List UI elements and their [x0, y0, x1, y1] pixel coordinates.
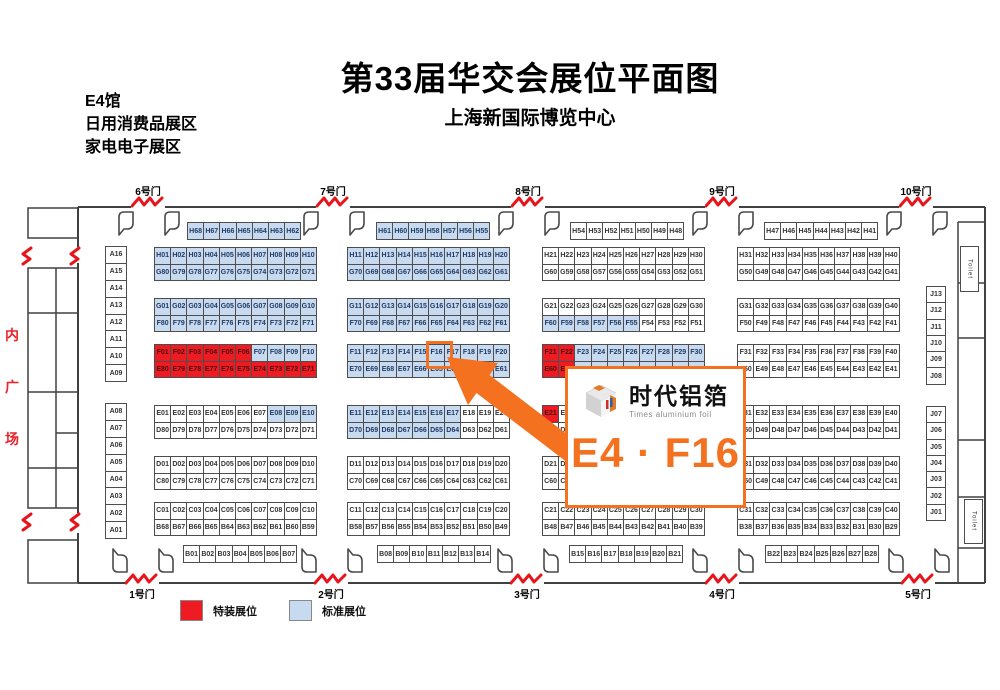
booth-E10: E10: [301, 406, 316, 422]
booth-F55: F55: [624, 316, 639, 332]
booth-H60: H60: [393, 223, 408, 239]
booth-H64: H64: [253, 223, 268, 239]
booth-B26: B26: [831, 546, 846, 562]
booth-F07: F07: [252, 345, 267, 361]
booth-B07: B07: [281, 546, 296, 562]
booth-C12: C12: [364, 503, 379, 519]
booth-grid: B22B23B24B25B26B27B28: [765, 545, 879, 563]
booth-G18: G18: [461, 299, 476, 315]
booth-E48: E48: [770, 362, 785, 378]
booth-C80: C80: [155, 474, 170, 490]
booth-H15: H15: [413, 248, 428, 264]
booth-C35: C35: [803, 503, 818, 519]
booth-D69: D69: [364, 423, 379, 439]
booth-F41: F41: [884, 316, 899, 332]
booth-G13: G13: [380, 299, 395, 315]
booth-C62: C62: [478, 474, 493, 490]
booth-D74: D74: [252, 423, 267, 439]
booth-F76: F76: [220, 316, 235, 332]
booth-F29: F29: [673, 345, 688, 361]
booth-A05: A05: [106, 455, 126, 471]
booth-G54: G54: [640, 265, 655, 281]
booth-grid: J13J12J11J10J09J08: [926, 286, 946, 385]
booth-G14: G14: [397, 299, 412, 315]
booth-D60: D60: [543, 423, 558, 439]
brand-row: 时代铝箔 Times aluminium foil: [582, 383, 729, 419]
booth-F53: F53: [656, 316, 671, 332]
booth-B43: B43: [624, 520, 639, 536]
booth-G68: G68: [380, 265, 395, 281]
booth-E41: E41: [884, 362, 899, 378]
booth-D62: D62: [478, 423, 493, 439]
booth-E45: E45: [819, 362, 834, 378]
booth-G30: G30: [689, 299, 704, 315]
booth-G26: G26: [624, 299, 639, 315]
booth-D15: D15: [413, 457, 428, 473]
booth-B58: B58: [348, 520, 363, 536]
brand-name-en: Times aluminium foil: [629, 410, 729, 419]
gate-label-4号门: 4号门: [709, 586, 735, 601]
booth-E05: E05: [220, 406, 235, 422]
booth-D78: D78: [187, 423, 202, 439]
booth-H28: H28: [656, 248, 671, 264]
booth-grid: H54H53H52H51H50H49H48: [570, 222, 684, 240]
booth-B09: B09: [394, 546, 409, 562]
booth-E69: E69: [364, 362, 379, 378]
booth-C71: C71: [301, 474, 316, 490]
booth-D67: D67: [397, 423, 412, 439]
booth-grid: B08B09B10B11B12B13B14: [377, 545, 491, 563]
booth-H32: H32: [754, 248, 769, 264]
booth-C44: C44: [835, 474, 850, 490]
booth-H19: H19: [478, 248, 493, 264]
booth-F21: F21: [543, 345, 558, 361]
booth-C73: C73: [268, 474, 283, 490]
booth-B08: B08: [378, 546, 393, 562]
booth-B11: B11: [427, 546, 442, 562]
booth-G10: G10: [301, 299, 316, 315]
gate-mark-icon: [705, 196, 739, 208]
booth-C10: C10: [301, 503, 316, 519]
booth-D75: D75: [236, 423, 251, 439]
booth-B10: B10: [410, 546, 425, 562]
booth-E62: E62: [478, 362, 493, 378]
booth-B57: B57: [364, 520, 379, 536]
booth-B64: B64: [220, 520, 235, 536]
booth-E01: E01: [155, 406, 170, 422]
booth-B14: B14: [475, 546, 490, 562]
booth-C34: C34: [787, 503, 802, 519]
booth-D32: D32: [754, 457, 769, 473]
booth-G56: G56: [608, 265, 623, 281]
booth-E15: E15: [413, 406, 428, 422]
booth-C08: C08: [268, 503, 283, 519]
booth-D70: D70: [348, 423, 363, 439]
booth-G03: G03: [187, 299, 202, 315]
door-swing-icon: [736, 210, 756, 236]
booth-C43: C43: [851, 474, 866, 490]
booth-F14: F14: [397, 345, 412, 361]
booth-E11: E11: [348, 406, 363, 422]
door-swing-icon: [116, 210, 136, 236]
booth-D35: D35: [803, 457, 818, 473]
booth-G62: G62: [478, 265, 493, 281]
booth-G80: G80: [155, 265, 170, 281]
booth-D45: D45: [819, 423, 834, 439]
booth-C11: C11: [348, 503, 363, 519]
booth-F58: F58: [575, 316, 590, 332]
booth-grid: C01C02C03C04C05C06C07C08C09C10B68B67B66B…: [154, 502, 317, 536]
booth-F78: F78: [187, 316, 202, 332]
booth-H27: H27: [640, 248, 655, 264]
booth-F10: F10: [301, 345, 316, 361]
booth-grid: D11D12D13D14D15D16D17D18D19D20C70C69C68C…: [347, 456, 510, 490]
booth-C03: C03: [187, 503, 202, 519]
booth-D63: D63: [461, 423, 476, 439]
booth-grid: F01F02F03F04F05F06F07F08F09F10E80E79E78E…: [154, 344, 317, 378]
booth-F48: F48: [770, 316, 785, 332]
booth-C18: C18: [461, 503, 476, 519]
booth-B48: B48: [543, 520, 558, 536]
booth-F12: F12: [364, 345, 379, 361]
gate-mark-icon: [901, 573, 935, 585]
booth-G51: G51: [689, 265, 704, 281]
booth-E79: E79: [171, 362, 186, 378]
door-swing-icon: [884, 210, 904, 236]
booth-D17: D17: [445, 457, 460, 473]
booth-D21: D21: [543, 457, 558, 473]
door-swing-icon: [930, 210, 950, 236]
booth-G31: G31: [738, 299, 753, 315]
booth-E07: E07: [252, 406, 267, 422]
door-swing-icon: [301, 210, 321, 236]
legend-standard-swatch: [289, 600, 312, 621]
booth-G72: G72: [285, 265, 300, 281]
booth-H02: H02: [171, 248, 186, 264]
booth-grid: A08A07A06A05A04A03A02A01: [105, 403, 127, 539]
booth-E19: E19: [478, 406, 493, 422]
gate-mark-icon: [899, 196, 933, 208]
booth-C60: C60: [543, 474, 558, 490]
booth-E44: E44: [835, 362, 850, 378]
gate-label-5号门: 5号门: [905, 586, 931, 601]
booth-H30: H30: [689, 248, 704, 264]
booth-D71: D71: [301, 423, 316, 439]
booth-F43: F43: [851, 316, 866, 332]
booth-D43: D43: [851, 423, 866, 439]
booth-E16: E16: [429, 406, 444, 422]
booth-C74: C74: [252, 474, 267, 490]
booth-D64: D64: [445, 423, 460, 439]
booth-H52: H52: [603, 223, 618, 239]
door-swing-icon: [110, 548, 130, 574]
booth-C16: C16: [429, 503, 444, 519]
booth-F36: F36: [819, 345, 834, 361]
door-swing-icon: [541, 548, 561, 574]
booth-B51: B51: [461, 520, 476, 536]
booth-B46: B46: [575, 520, 590, 536]
booth-F65: F65: [429, 316, 444, 332]
booth-B68: B68: [155, 520, 170, 536]
booth-H65: H65: [237, 223, 252, 239]
booth-B04: B04: [233, 546, 248, 562]
legend: 特装展位 标准展位: [180, 600, 388, 621]
booth-C32: C32: [754, 503, 769, 519]
booth-C42: C42: [868, 474, 883, 490]
booth-B50: B50: [478, 520, 493, 536]
booth-C09: C09: [285, 503, 300, 519]
booth-B34: B34: [803, 520, 818, 536]
booth-E03: E03: [187, 406, 202, 422]
booth-G52: G52: [673, 265, 688, 281]
brand-text: 时代铝箔 Times aluminium foil: [629, 384, 729, 419]
booth-J07: J07: [927, 407, 945, 422]
booth-H20: H20: [494, 248, 509, 264]
booth-C66: C66: [413, 474, 428, 490]
booth-E68: E68: [380, 362, 395, 378]
booth-E18: E18: [461, 406, 476, 422]
booth-C46: C46: [803, 474, 818, 490]
booth-G40: G40: [884, 299, 899, 315]
booth-B23: B23: [782, 546, 797, 562]
booth-grid: D31D32D33D34D35D36D37D38D39D40C50C49C48C…: [737, 456, 900, 490]
booth-A08: A08: [106, 404, 126, 420]
booth-A13: A13: [106, 298, 126, 314]
booth-F19: F19: [478, 345, 493, 361]
booth-B62: B62: [252, 520, 267, 536]
booth-G61: G61: [494, 265, 509, 281]
booth-F39: F39: [868, 345, 883, 361]
booth-F04: F04: [204, 345, 219, 361]
booth-G75: G75: [236, 265, 251, 281]
booth-J09: J09: [927, 352, 945, 367]
booth-C40: C40: [884, 503, 899, 519]
booth-G19: G19: [478, 299, 493, 315]
booth-G60: G60: [543, 265, 558, 281]
booth-C70: C70: [348, 474, 363, 490]
booth-G64: G64: [445, 265, 460, 281]
booth-J05: J05: [927, 440, 945, 455]
booth-F54: F54: [640, 316, 655, 332]
booth-A06: A06: [106, 438, 126, 454]
booth-D38: D38: [851, 457, 866, 473]
booth-B65: B65: [204, 520, 219, 536]
booth-F24: F24: [592, 345, 607, 361]
booth-G05: G05: [220, 299, 235, 315]
booth-H49: H49: [652, 223, 667, 239]
booth-F22: F22: [559, 345, 574, 361]
booth-G04: G04: [204, 299, 219, 315]
booth-C02: C02: [171, 503, 186, 519]
booth-F62: F62: [478, 316, 493, 332]
booth-G27: G27: [640, 299, 655, 315]
booth-E80: E80: [155, 362, 170, 378]
booth-D12: D12: [364, 457, 379, 473]
toilet-room-top: Toilet: [960, 246, 979, 292]
booth-D41: D41: [884, 423, 899, 439]
booth-D47: D47: [787, 423, 802, 439]
booth-H07: H07: [252, 248, 267, 264]
booth-B02: B02: [200, 546, 215, 562]
booth-B63: B63: [236, 520, 251, 536]
booth-B27: B27: [847, 546, 862, 562]
booth-D37: D37: [835, 457, 850, 473]
booth-A11: A11: [106, 331, 126, 347]
booth-C01: C01: [155, 503, 170, 519]
booth-E75: E75: [236, 362, 251, 378]
booth-B12: B12: [443, 546, 458, 562]
booth-D16: D16: [429, 457, 444, 473]
booth-E71: E71: [301, 362, 316, 378]
booth-G06: G06: [236, 299, 251, 315]
booth-B61: B61: [268, 520, 283, 536]
booth-H43: H43: [830, 223, 845, 239]
booth-F63: F63: [461, 316, 476, 332]
booth-E73: E73: [268, 362, 283, 378]
booth-D33: D33: [770, 457, 785, 473]
booth-G22: G22: [559, 299, 574, 315]
door-swing-icon: [345, 548, 365, 574]
booth-E39: E39: [868, 406, 883, 422]
booth-E49: E49: [754, 362, 769, 378]
booth-B53: B53: [429, 520, 444, 536]
booth-D11: D11: [348, 457, 363, 473]
booth-A15: A15: [106, 264, 126, 280]
booth-H06: H06: [236, 248, 251, 264]
booth-F73: F73: [268, 316, 283, 332]
booth-C67: C67: [397, 474, 412, 490]
booth-E46: E46: [803, 362, 818, 378]
booth-G45: G45: [819, 265, 834, 281]
brand-name-cn: 时代铝箔: [629, 384, 729, 408]
booth-H48: H48: [668, 223, 683, 239]
booth-B38: B38: [738, 520, 753, 536]
booth-G69: G69: [364, 265, 379, 281]
booth-H08: H08: [268, 248, 283, 264]
booth-H41: H41: [862, 223, 877, 239]
booth-H54: H54: [571, 223, 586, 239]
booth-G57: G57: [592, 265, 607, 281]
booth-B33: B33: [819, 520, 834, 536]
booth-D02: D02: [171, 457, 186, 473]
booth-A14: A14: [106, 281, 126, 297]
booth-G01: G01: [155, 299, 170, 315]
booth-G65: G65: [429, 265, 444, 281]
booth-D65: D65: [429, 423, 444, 439]
booth-G73: G73: [268, 265, 283, 281]
booth-F59: F59: [559, 316, 574, 332]
booth-H44: H44: [814, 223, 829, 239]
booth-F09: F09: [285, 345, 300, 361]
booth-E40: E40: [884, 406, 899, 422]
booth-J10: J10: [927, 336, 945, 351]
booth-D34: D34: [787, 457, 802, 473]
booth-F56: F56: [608, 316, 623, 332]
booth-C07: C07: [252, 503, 267, 519]
booth-E70: E70: [348, 362, 363, 378]
booth-B35: B35: [787, 520, 802, 536]
booth-E14: E14: [397, 406, 412, 422]
booth-grid: D01D02D03D04D05D06D07D08D09D10C80C79C78C…: [154, 456, 317, 490]
booth-E36: E36: [819, 406, 834, 422]
booth-B25: B25: [815, 546, 830, 562]
booth-F50: F50: [738, 316, 753, 332]
booth-E21: E21: [543, 406, 558, 422]
booth-grid: J07J06J05J04J03J02J01: [926, 406, 946, 521]
booth-F60: F60: [543, 316, 558, 332]
booth-H50: H50: [636, 223, 651, 239]
booth-B30: B30: [868, 520, 883, 536]
booth-B37: B37: [754, 520, 769, 536]
booth-G23: G23: [575, 299, 590, 315]
booth-G74: G74: [252, 265, 267, 281]
booth-B32: B32: [835, 520, 850, 536]
door-swing-icon: [347, 210, 367, 236]
booth-H10: H10: [301, 248, 316, 264]
booth-F20: F20: [494, 345, 509, 361]
booth-grid: F31F32F33F34F35F36F37F38F39F40E50E49E48E…: [737, 344, 900, 378]
booth-E63: E63: [461, 362, 476, 378]
booth-D19: D19: [478, 457, 493, 473]
booth-C38: C38: [851, 503, 866, 519]
booth-grid: H31H32H33H34H35H36H37H38H39H40G50G49G48G…: [737, 247, 900, 281]
booth-G49: G49: [754, 265, 769, 281]
booth-C48: C48: [770, 474, 785, 490]
booth-H47: H47: [765, 223, 780, 239]
booth-F35: F35: [803, 345, 818, 361]
booth-G21: G21: [543, 299, 558, 315]
booth-J06: J06: [927, 423, 945, 438]
booth-H58: H58: [426, 223, 441, 239]
booth-F71: F71: [301, 316, 316, 332]
booth-F23: F23: [575, 345, 590, 361]
booth-D04: D04: [204, 457, 219, 473]
booth-E60: E60: [543, 362, 558, 378]
booth-D79: D79: [171, 423, 186, 439]
booth-F57: F57: [592, 316, 607, 332]
booth-D42: D42: [868, 423, 883, 439]
floor-plan-canvas: 第33届华交会展位平面图 上海新国际博览中心 E4馆 日用消费品展区 家电电子展…: [0, 0, 1000, 690]
booth-C06: C06: [236, 503, 251, 519]
booth-G70: G70: [348, 265, 363, 281]
booth-H13: H13: [380, 248, 395, 264]
booth-G66: G66: [413, 265, 428, 281]
booth-G48: G48: [770, 265, 785, 281]
booth-F52: F52: [673, 316, 688, 332]
booth-F31: F31: [738, 345, 753, 361]
booth-D72: D72: [285, 423, 300, 439]
booth-C04: C04: [204, 503, 219, 519]
booth-F40: F40: [884, 345, 899, 361]
booth-G43: G43: [851, 265, 866, 281]
booth-G29: G29: [673, 299, 688, 315]
highlighted-booth-outline: [426, 341, 453, 369]
booth-H42: H42: [846, 223, 861, 239]
booth-F30: F30: [689, 345, 704, 361]
booth-B47: B47: [559, 520, 574, 536]
booth-J04: J04: [927, 456, 945, 471]
booth-F72: F72: [285, 316, 300, 332]
booth-E37: E37: [835, 406, 850, 422]
booth-C41: C41: [884, 474, 899, 490]
booth-F37: F37: [835, 345, 850, 361]
booth-C49: C49: [754, 474, 769, 490]
booth-H51: H51: [620, 223, 635, 239]
booth-G50: G50: [738, 265, 753, 281]
booth-B16: B16: [586, 546, 601, 562]
booth-G37: G37: [835, 299, 850, 315]
booth-F13: F13: [380, 345, 395, 361]
